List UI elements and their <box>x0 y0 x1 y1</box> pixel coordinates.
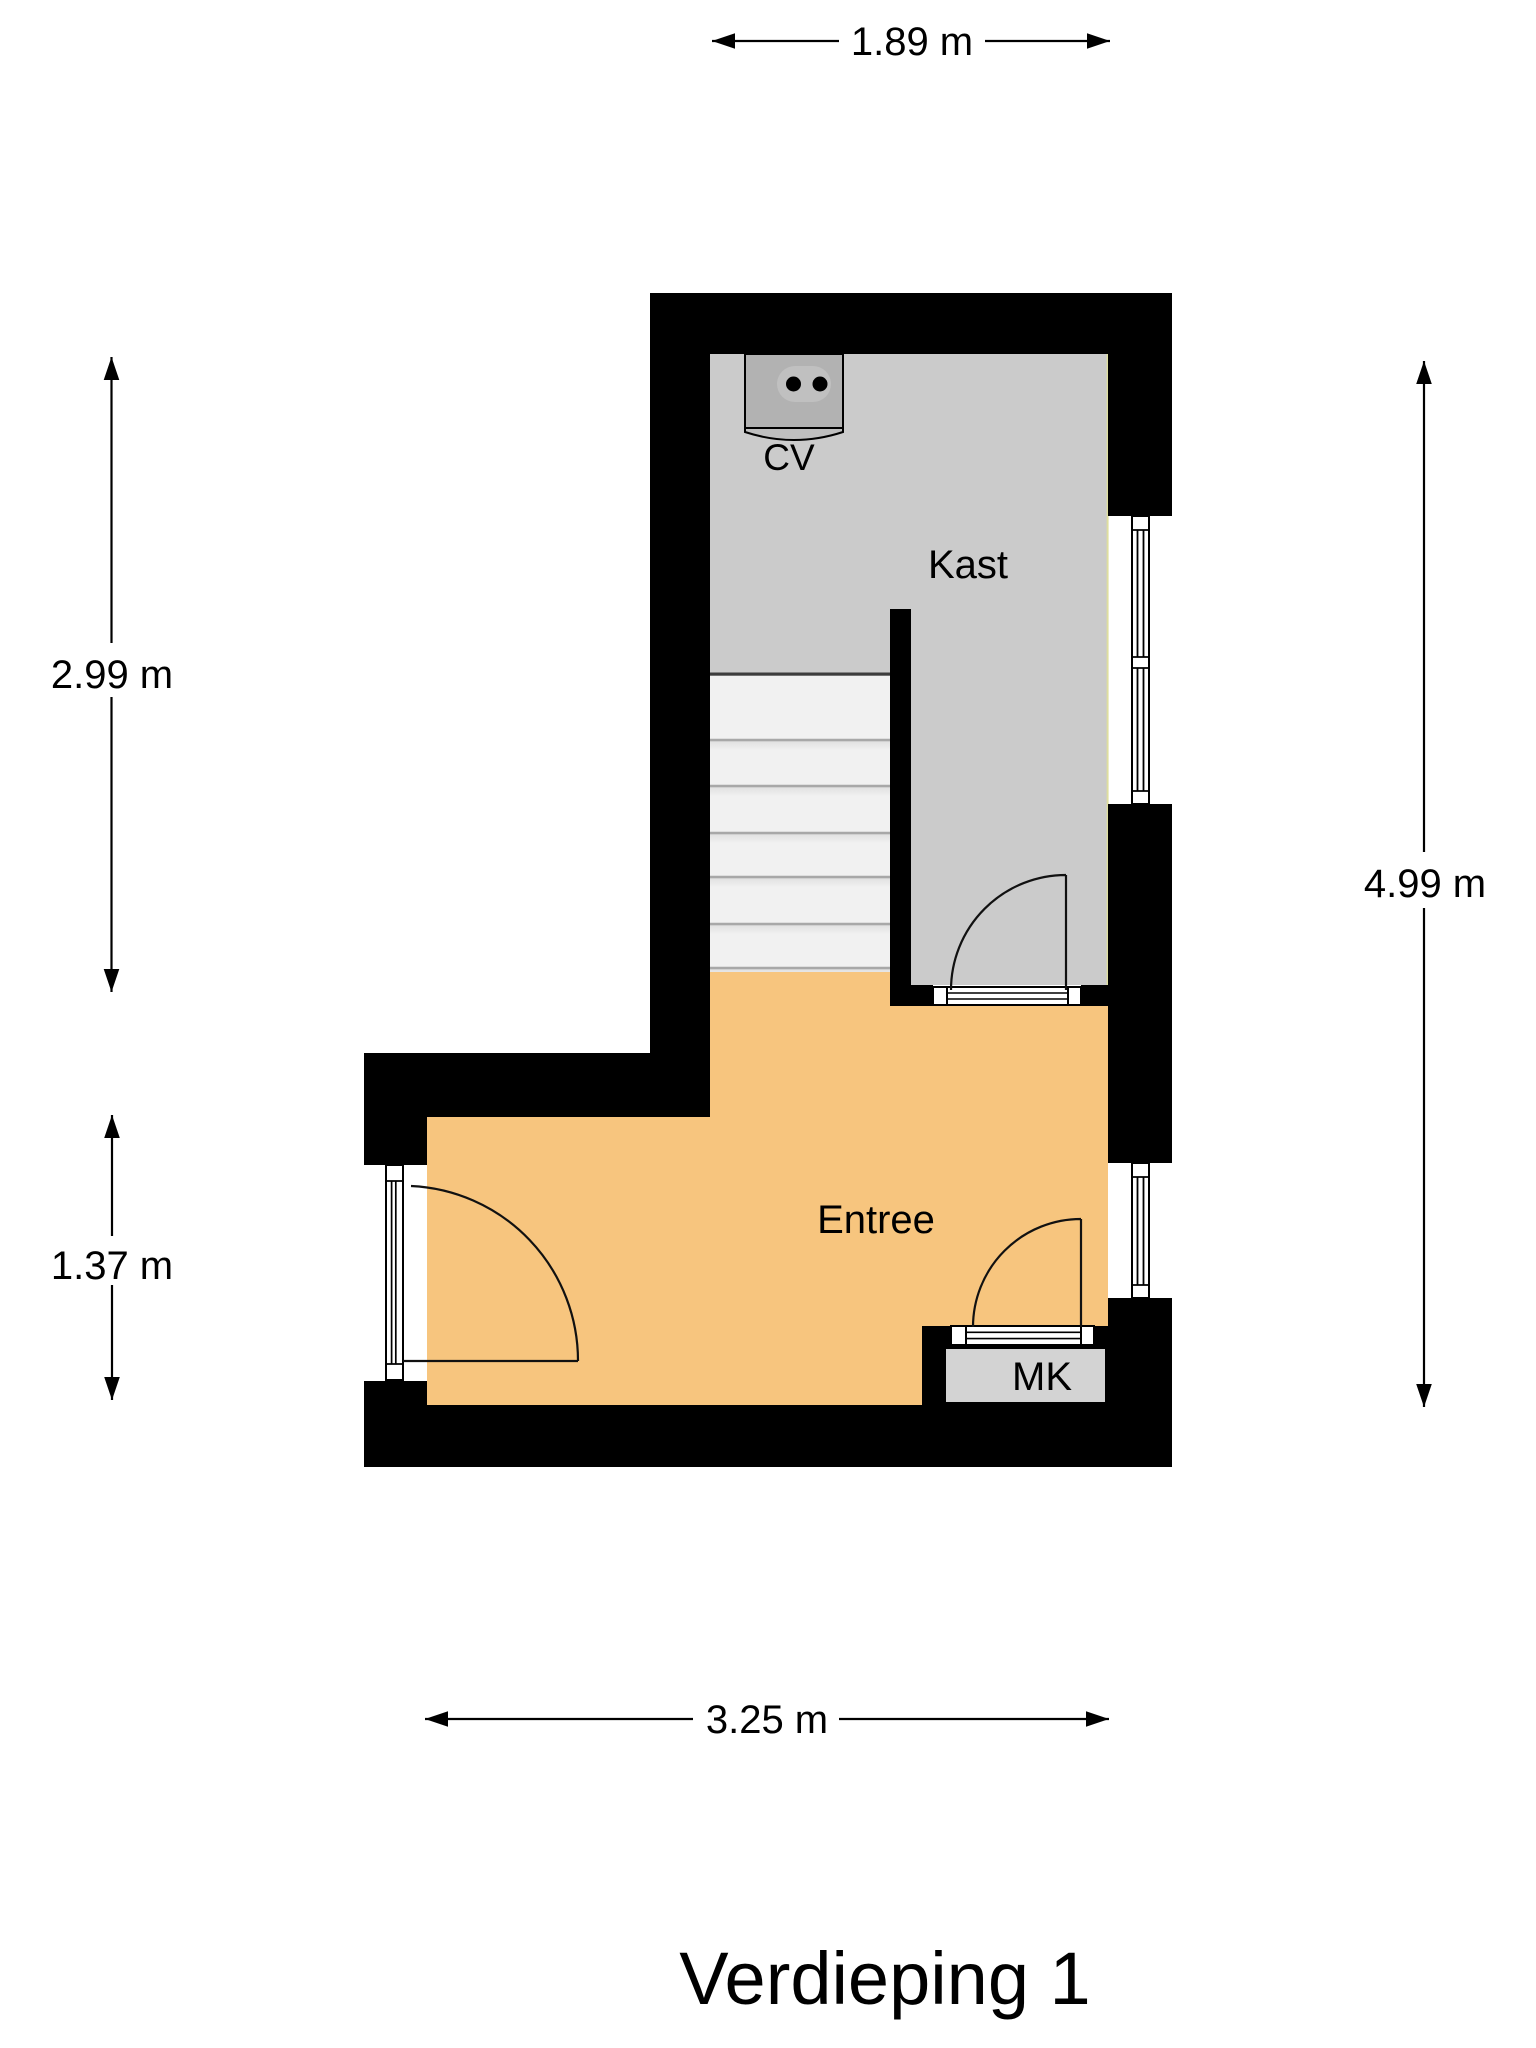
svg-text:MK: MK <box>1012 1355 1072 1399</box>
svg-text:1.89 m: 1.89 m <box>851 20 973 64</box>
svg-text:3.25 m: 3.25 m <box>706 1698 828 1742</box>
svg-text:Entree: Entree <box>817 1198 935 1242</box>
svg-text:2.99 m: 2.99 m <box>51 653 173 697</box>
svg-text:Kast: Kast <box>928 543 1008 587</box>
svg-text:1.37 m: 1.37 m <box>51 1244 173 1288</box>
svg-text:CV: CV <box>763 437 815 478</box>
svg-text:4.99 m: 4.99 m <box>1364 862 1486 906</box>
svg-text:Verdieping 1: Verdieping 1 <box>679 1937 1090 2020</box>
